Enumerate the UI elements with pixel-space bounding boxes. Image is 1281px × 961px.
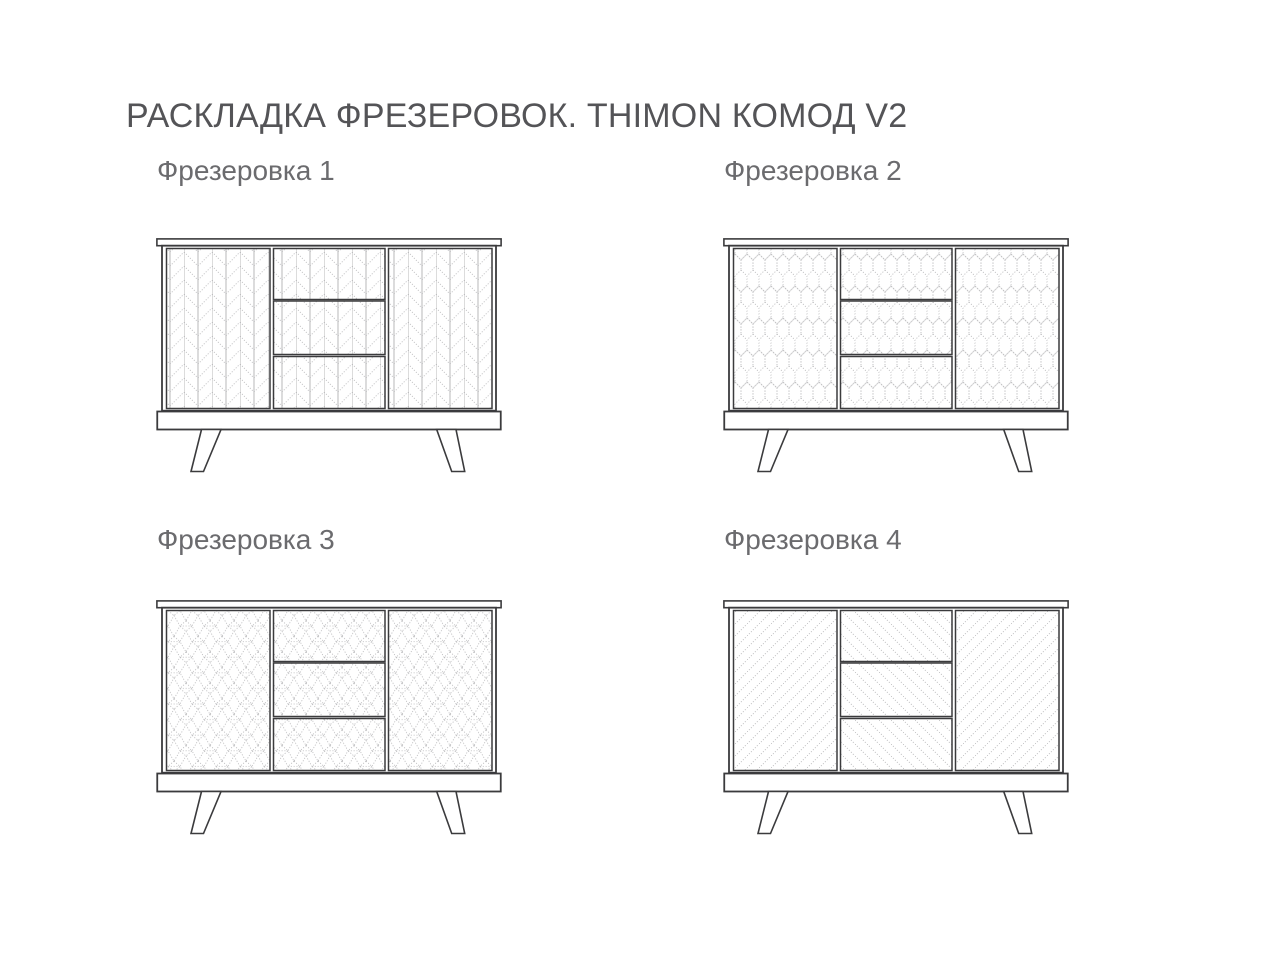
variant-label-3: Фрезеровка 3 — [157, 526, 335, 554]
drawer-bottom — [274, 719, 386, 771]
drawer-middle — [274, 301, 386, 355]
left-leg — [758, 430, 788, 472]
right-door — [956, 249, 1060, 409]
plinth — [724, 774, 1068, 792]
top-board — [724, 239, 1068, 246]
top-board — [157, 601, 501, 608]
dresser-drawing-3 — [156, 600, 502, 840]
left-leg — [758, 792, 788, 834]
dresser-drawing-4 — [723, 600, 1069, 840]
left-door — [734, 249, 838, 409]
right-leg — [437, 792, 465, 834]
page-title: РАСКЛАДКА ФРЕЗЕРОВОК. THIMON КОМОД V2 — [126, 99, 907, 133]
drawer-top — [274, 611, 386, 662]
milling-layout-page: РАСКЛАДКА ФРЕЗЕРОВОК. THIMON КОМОД V2 Фр… — [0, 0, 1281, 961]
drawer-middle — [274, 663, 386, 717]
top-board — [724, 601, 1068, 608]
drawer-top — [841, 249, 953, 300]
drawer-bottom — [274, 357, 386, 409]
left-door — [167, 611, 271, 771]
variant-label-4: Фрезеровка 4 — [724, 526, 902, 554]
left-door — [734, 611, 838, 771]
drawer-top — [274, 249, 386, 300]
dresser-drawing-2 — [723, 238, 1069, 478]
drawer-bottom — [841, 357, 953, 409]
drawer-middle — [841, 301, 953, 355]
right-door — [389, 249, 493, 409]
left-leg — [191, 792, 221, 834]
variant-label-1: Фрезеровка 1 — [157, 157, 335, 185]
plinth — [157, 774, 501, 792]
right-leg — [1004, 792, 1032, 834]
right-leg — [1004, 430, 1032, 472]
left-door — [167, 249, 271, 409]
left-leg — [191, 430, 221, 472]
right-door — [956, 611, 1060, 771]
plinth — [724, 412, 1068, 430]
variant-label-2: Фрезеровка 2 — [724, 157, 902, 185]
top-board — [157, 239, 501, 246]
right-door — [389, 611, 493, 771]
right-leg — [437, 430, 465, 472]
drawer-middle — [841, 663, 953, 717]
dresser-drawing-1 — [156, 238, 502, 478]
drawer-top — [841, 611, 953, 662]
plinth — [157, 412, 501, 430]
drawer-bottom — [841, 719, 953, 771]
